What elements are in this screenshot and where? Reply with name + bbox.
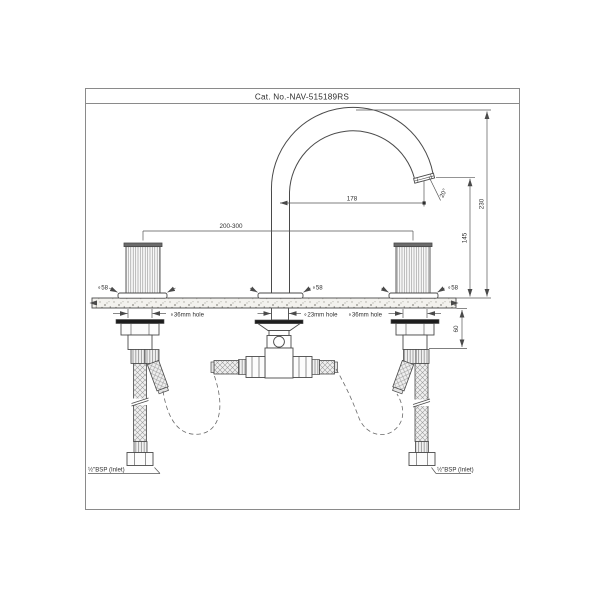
right-handle-base [389,293,438,298]
countertop [90,298,459,308]
dim-spout-reach: 178 [347,196,358,203]
dia58-center-a [250,288,258,292]
valve-left-nut [246,357,265,378]
dim-max-deck: 60 [453,325,460,333]
right-handle-cap [394,243,432,247]
dim-178-end-dot [423,201,426,204]
label-dia58-right: ∘58 [447,285,458,292]
left-gasket [116,320,164,324]
left-bsp-nut [127,453,153,466]
left-hose-nut-a [131,350,145,364]
left-hose-break [132,399,149,406]
label-hole23-center: ∘23mm hole [304,312,339,319]
catalog-number-title: Cat. No.-NAV-515189RS [255,93,349,102]
right-under-mount [391,320,439,466]
dim-handle-spacing: 200-300 [219,223,243,230]
label-hole36-right: ∘36mm hole [348,312,383,319]
valve-right-nut [293,357,312,378]
right-handle [389,243,438,298]
label-bsp-inlet-left: ½"BSP (Inlet) [88,467,125,474]
right-diagonal-hose [392,360,414,394]
left-shank [128,335,152,350]
right-handle-knurl [396,247,430,293]
right-bsp-nut [409,453,435,466]
center-flange [258,324,300,331]
right-hose-break [413,400,430,407]
dim-outlet-angle: 20° [438,187,449,199]
dia58-right-b [438,288,445,292]
dia58-right-a [382,288,389,292]
left-handle [118,243,167,298]
diverter-circle [274,336,285,347]
dia58-left-a [109,288,118,292]
right-hose-nut-b [416,350,429,364]
valve-left-connector [239,360,247,375]
valve-body [265,348,293,378]
spout-base-flange [258,293,303,298]
label-bsp-inlet-right: ½"BSP (Inlet) [437,467,474,474]
faucet-drawing: Cat. No.-NAV-515189RS [0,0,600,600]
riser-stub [272,308,289,320]
label-hole36-left: ∘36mm hole [170,312,205,319]
right-gasket [391,320,439,324]
hose-routing-dashed [163,369,403,435]
left-diagonal-hose [147,360,169,394]
left-handle-base [118,293,167,298]
left-hose-route [163,372,220,434]
valve-right-connector [312,360,320,375]
bsp-right-tick [432,468,437,474]
center-gasket [255,320,303,324]
dim-overall-height: 230 [479,198,486,209]
left-hose-collar [134,442,147,453]
right-mount-nut [396,324,434,336]
left-under-mount [116,320,169,466]
valve-right-hose-stub [320,361,335,375]
dim-outlet-height: 145 [462,232,469,243]
label-dia58-left: ∘58 [97,285,108,292]
left-handle-knurl [126,247,160,293]
left-mount-nut [121,324,159,336]
right-hose-route [336,369,403,435]
label-dia58-center: ∘58 [312,285,323,292]
bsp-left-tick [155,468,161,474]
dia58-left-b [168,288,176,292]
right-shank [403,335,427,350]
center-valve [211,308,338,378]
valve-left-hose-stub [214,361,239,375]
technical-drawing-page: { "title": "Cat. No.-NAV-515189RS", "dim… [0,0,600,600]
dia58-center-b [304,288,311,292]
valve-neck [269,331,289,336]
right-hose-collar [416,442,429,453]
left-handle-cap [124,243,162,247]
